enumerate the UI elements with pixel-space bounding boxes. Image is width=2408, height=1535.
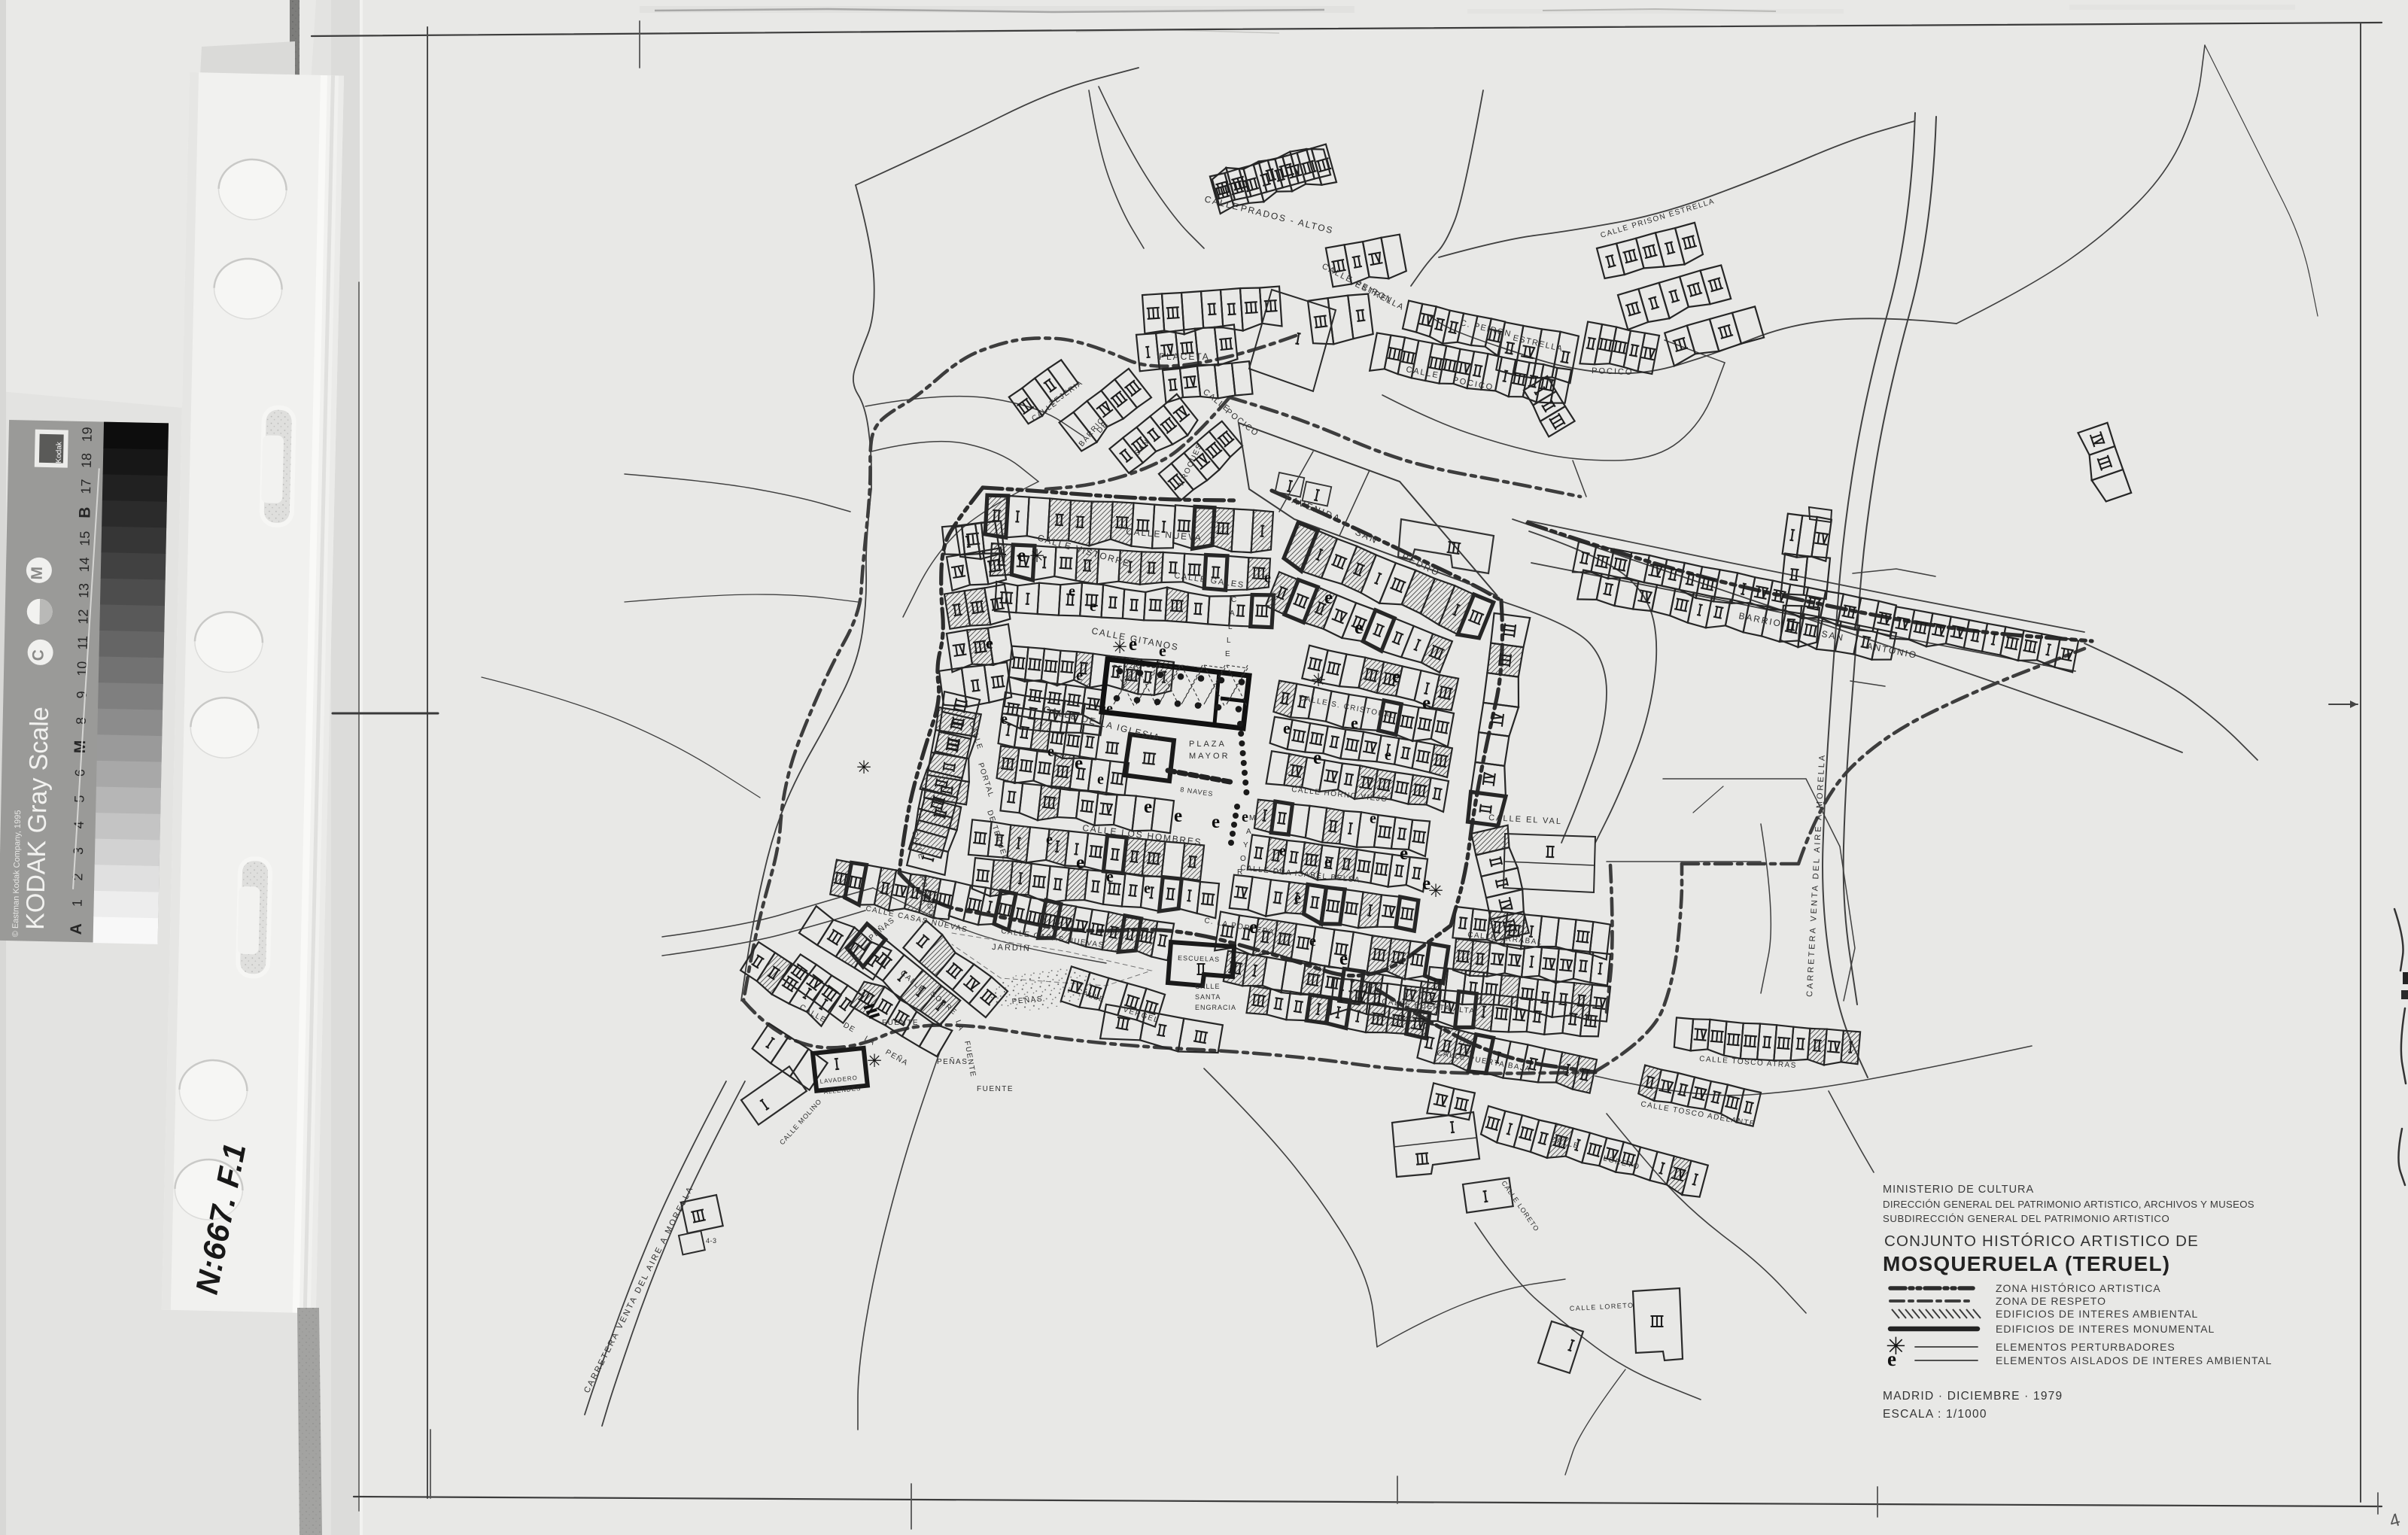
svg-text:L: L <box>1227 637 1231 645</box>
svg-text:✳: ✳ <box>856 758 871 778</box>
svg-text:ZONA HISTÓRICO ARTISTICA: ZONA HISTÓRICO ARTISTICA <box>1996 1282 2161 1294</box>
svg-text:e: e <box>1076 853 1084 873</box>
svg-text:e: e <box>1283 719 1291 737</box>
svg-text:O: O <box>1240 855 1246 863</box>
svg-text:e: e <box>1001 711 1008 728</box>
svg-text:e: e <box>1046 831 1053 848</box>
svg-text:SUBDIRECCIÓN GENERAL DEL PATRI: SUBDIRECCIÓN GENERAL DEL PATRIMONIO ARTI… <box>1883 1213 2169 1224</box>
svg-text:18: 18 <box>79 453 94 468</box>
svg-text:3: 3 <box>71 847 86 855</box>
svg-text:e: e <box>1887 1348 1896 1370</box>
svg-text:e: e <box>1212 812 1220 832</box>
svg-text:A: A <box>68 923 85 935</box>
svg-text:CALLE: CALLE <box>1195 983 1221 990</box>
svg-text:A: A <box>1246 828 1251 836</box>
svg-text:9: 9 <box>74 691 89 698</box>
svg-text:POCICO: POCICO <box>1592 366 1634 377</box>
svg-text:4-3: 4-3 <box>706 1237 717 1245</box>
svg-text:e: e <box>1385 747 1391 764</box>
svg-text:e: e <box>1129 634 1137 655</box>
svg-text:✳: ✳ <box>1311 670 1326 691</box>
svg-text:CONJUNTO HISTÓRICO ARTISTICO: CONJUNTO HISTÓRICO ARTISTICO DE <box>1884 1233 2199 1250</box>
svg-text:A: A <box>1230 609 1235 618</box>
svg-text:L: L <box>1228 623 1233 631</box>
svg-text:EDIFICIOS DE INTERES AMBIEN: EDIFICIOS DE INTERES AMBIENTAL <box>1996 1308 2198 1320</box>
svg-text:PEÑAS: PEÑAS <box>937 1056 968 1066</box>
svg-text:8: 8 <box>74 717 89 725</box>
svg-text:e: e <box>1090 598 1096 615</box>
svg-text:12: 12 <box>75 609 90 624</box>
svg-text:ESCUELAS: ESCUELAS <box>1178 954 1220 963</box>
svg-text:ELEMENTOS PERTURBADORES: ELEMENTOS PERTURBADORES <box>1996 1341 2175 1353</box>
svg-text:e: e <box>1309 933 1316 950</box>
svg-text:1: 1 <box>70 899 85 907</box>
svg-text:e: e <box>1106 701 1113 717</box>
svg-text:e: e <box>1097 771 1104 788</box>
svg-text:M: M <box>29 567 46 580</box>
svg-text:ENGRACIA: ENGRACIA <box>1195 1004 1236 1011</box>
svg-text:e: e <box>986 634 993 652</box>
svg-text:e: e <box>1370 810 1376 827</box>
svg-text:e: e <box>1354 618 1363 638</box>
svg-text:ZONA DE RESPETO: ZONA DE RESPETO <box>1996 1295 2106 1307</box>
svg-text:e: e <box>1069 583 1075 600</box>
svg-text:e: e <box>1313 748 1321 768</box>
svg-text:✳: ✳ <box>1112 637 1127 658</box>
svg-text:19: 19 <box>79 427 94 442</box>
svg-text:C: C <box>29 649 47 661</box>
svg-text:15: 15 <box>78 531 93 546</box>
svg-text:e: e <box>1075 753 1083 774</box>
svg-text:e: e <box>1264 570 1271 586</box>
svg-text:e: e <box>1279 843 1286 859</box>
svg-text:MINISTERIO DE CULTURA: MINISTERIO DE CULTURA <box>1883 1184 2034 1196</box>
svg-text:Kodak: Kodak <box>55 441 64 464</box>
svg-text:PLACETA: PLACETA <box>1159 351 1210 362</box>
svg-text:C: C <box>1231 596 1236 604</box>
svg-text:DIRECCIÓN GENERAL DEL PATRIMON: DIRECCIÓN GENERAL DEL PATRIMONIO ARTISTI… <box>1883 1199 2254 1210</box>
svg-text:✳: ✳ <box>1428 881 1443 901</box>
svg-text:SANTA: SANTA <box>1195 993 1221 1001</box>
svg-text:KODAK Gray Scale: KODAK Gray Scale <box>21 707 54 930</box>
svg-text:e: e <box>1242 809 1248 825</box>
svg-text:e: e <box>1017 546 1026 566</box>
svg-text:FUENTE: FUENTE <box>882 1019 919 1027</box>
svg-text:e: e <box>1159 641 1166 660</box>
svg-text:e: e <box>1076 667 1083 684</box>
svg-text:B: B <box>76 506 93 518</box>
svg-text:e: e <box>1144 797 1152 817</box>
svg-text:M: M <box>71 740 89 754</box>
svg-text:e: e <box>1324 854 1331 871</box>
svg-text:ESCALA : 1/1000: ESCALA : 1/1000 <box>1883 1408 1987 1421</box>
svg-text:13: 13 <box>76 583 91 598</box>
svg-text:ELEMENTOS AISLADOS DE INTER: ELEMENTOS AISLADOS DE INTERES AMBIENTAL <box>1996 1354 2273 1366</box>
svg-text:e: e <box>1422 693 1431 713</box>
svg-text:4: 4 <box>71 821 87 828</box>
svg-text:17: 17 <box>78 479 93 494</box>
svg-text:MOSQUERUELA (TERUEL): MOSQUERUELA (TERUEL) <box>1883 1252 2170 1275</box>
svg-text:e: e <box>1339 949 1348 969</box>
svg-text:Y: Y <box>1243 841 1248 850</box>
svg-text:MADRID · DICIEMBRE · 1979: MADRID · DICIEMBRE · 1979 <box>1883 1390 2063 1403</box>
svg-text:M: M <box>1249 814 1255 822</box>
svg-text:JARDIN: JARDIN <box>992 943 1031 953</box>
svg-text:e: e <box>1144 880 1151 897</box>
svg-text:MAYOR: MAYOR <box>1189 752 1230 761</box>
svg-text:e: e <box>1324 588 1333 608</box>
svg-text:PLAZA: PLAZA <box>1189 740 1227 749</box>
svg-text:R: R <box>1237 868 1242 877</box>
svg-text:EDIFICIOS DE INTERES MONUME: EDIFICIOS DE INTERES MONUMENTAL <box>1996 1323 2215 1335</box>
svg-text:FUENTE: FUENTE <box>977 1085 1014 1093</box>
svg-text:e: e <box>1174 806 1182 826</box>
svg-text:✳: ✳ <box>1029 546 1044 567</box>
svg-text:e: e <box>1392 667 1400 687</box>
svg-text:e: e <box>1106 867 1114 886</box>
svg-text:2: 2 <box>70 873 85 880</box>
svg-text:e: e <box>1351 713 1358 732</box>
svg-text:e: e <box>1400 843 1408 864</box>
svg-text:e: e <box>1047 743 1054 760</box>
svg-text:14: 14 <box>77 557 92 572</box>
svg-text:e: e <box>1294 890 1301 907</box>
svg-text:✳: ✳ <box>867 1051 882 1071</box>
svg-text:E: E <box>1225 650 1230 658</box>
svg-text:e: e <box>1249 917 1257 938</box>
